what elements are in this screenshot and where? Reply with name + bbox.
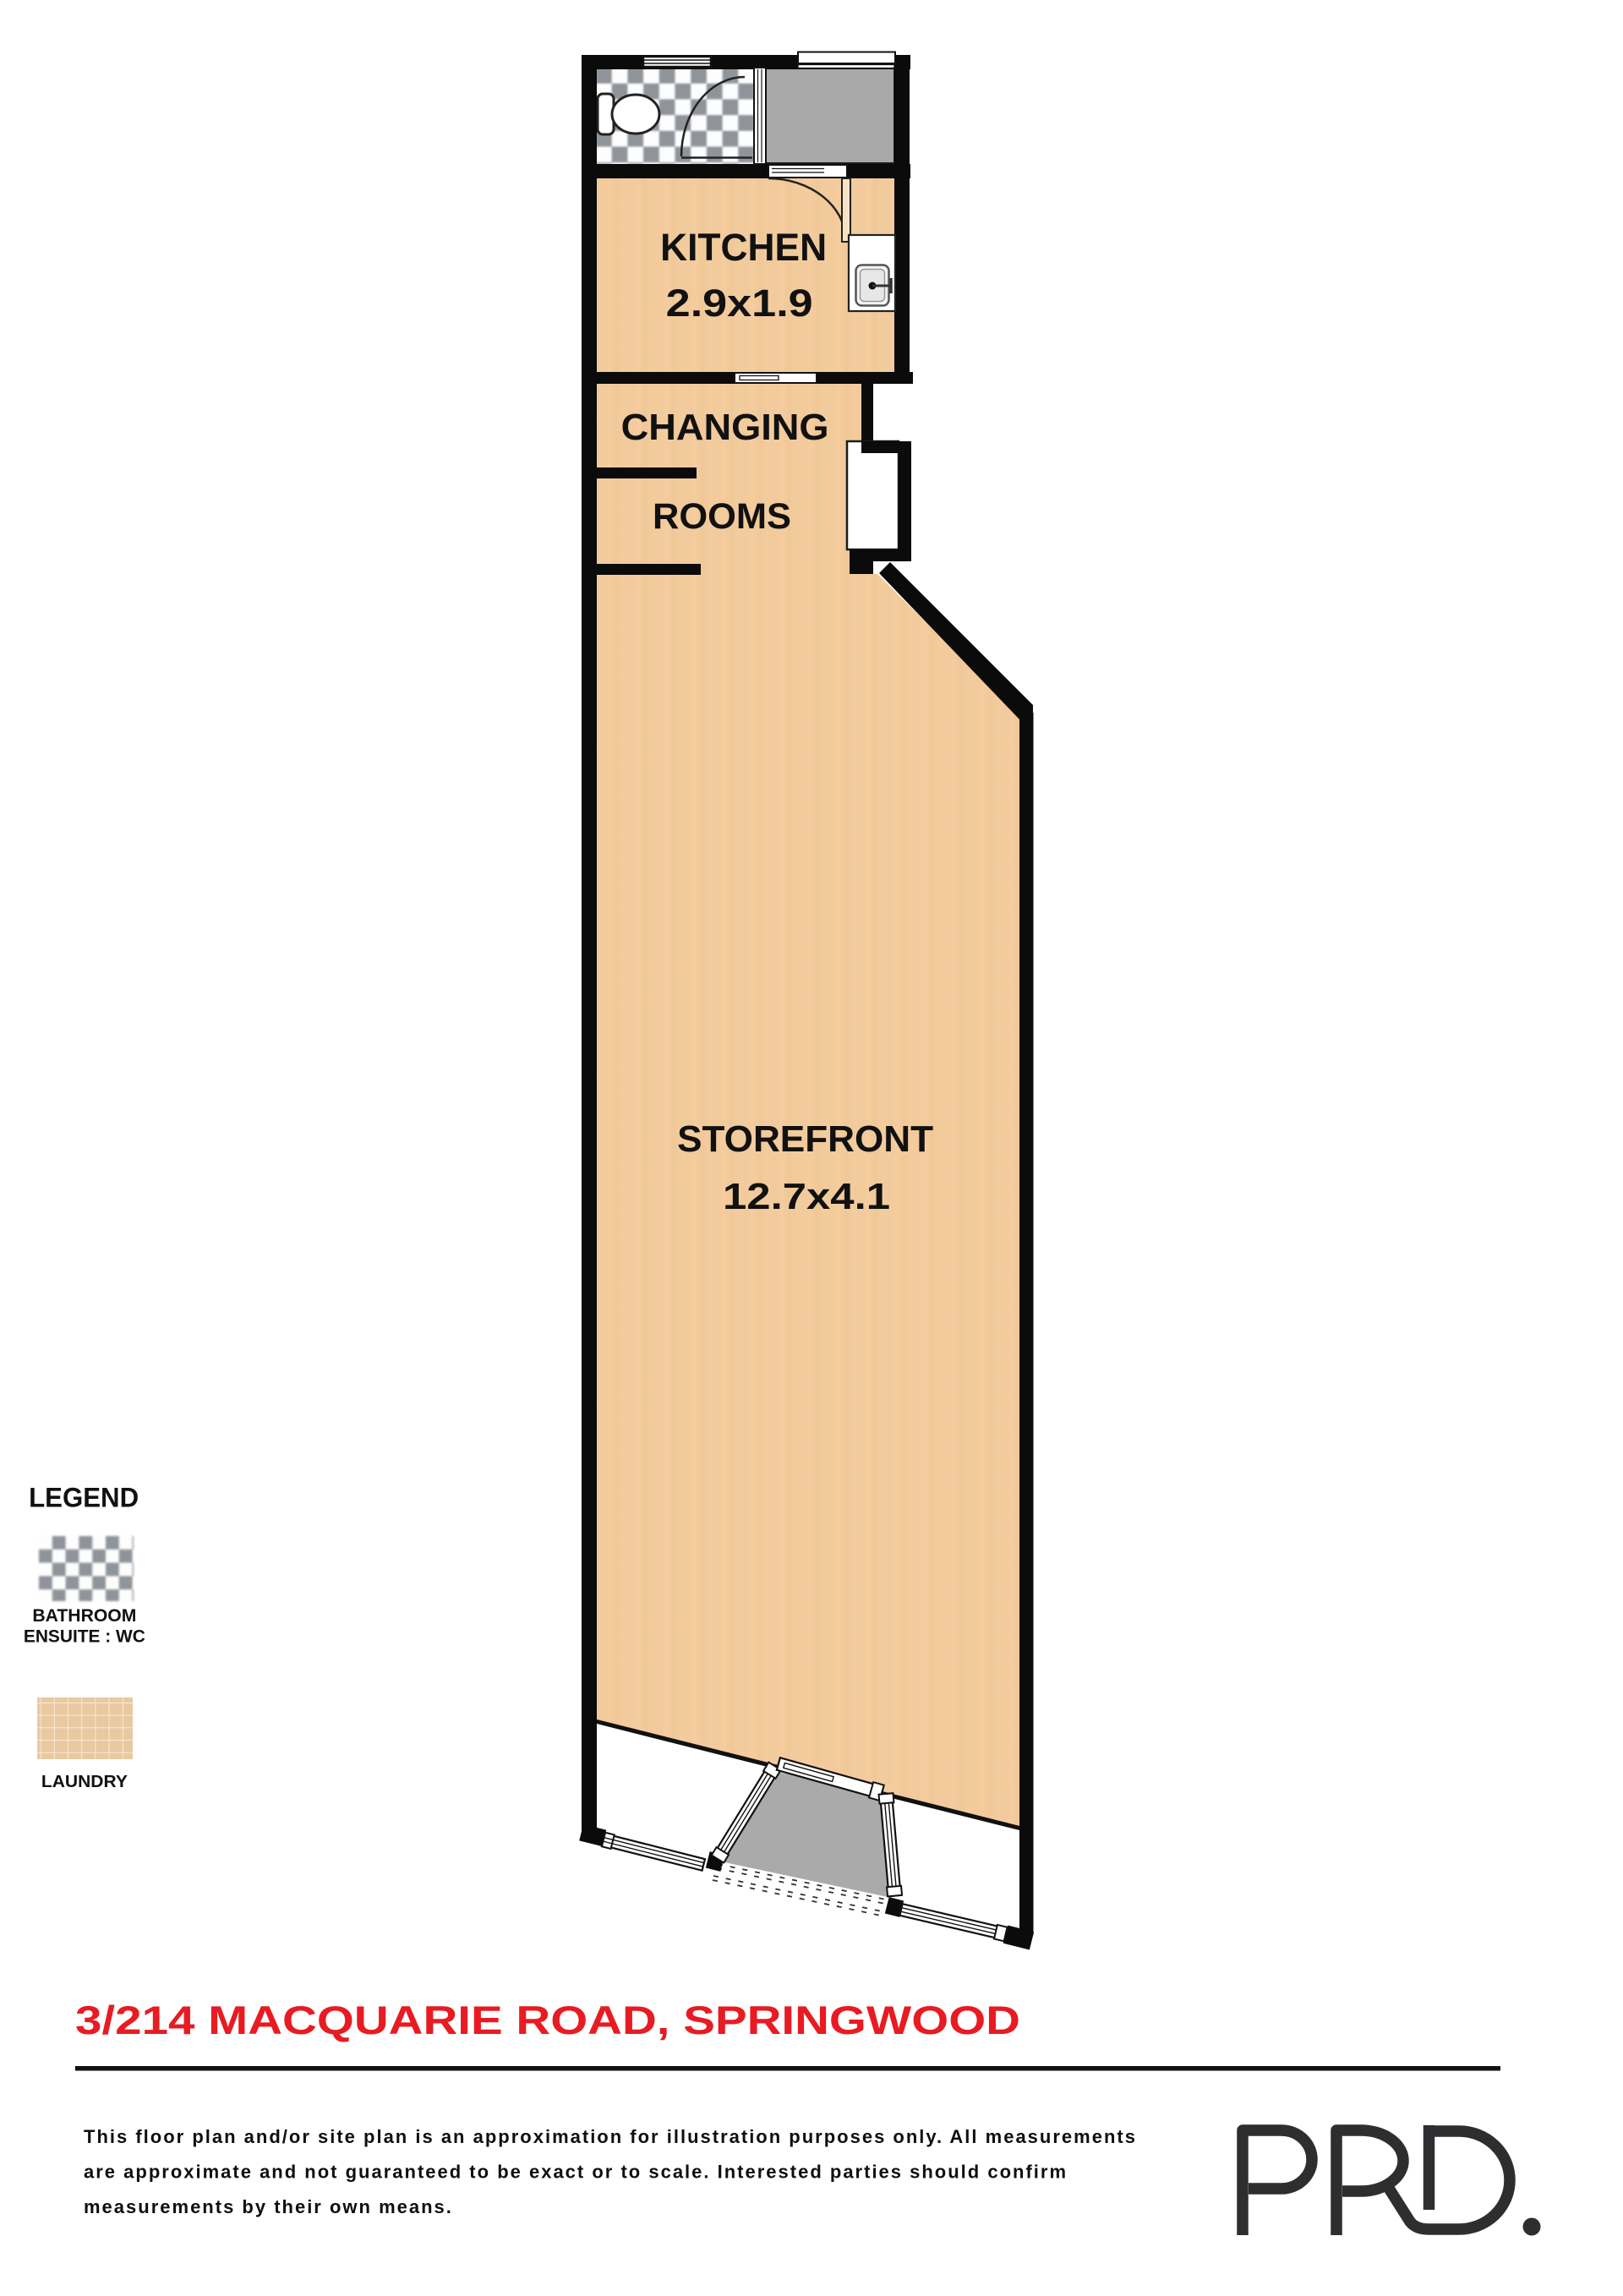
svg-text:LAUNDRY: LAUNDRY — [41, 1772, 128, 1791]
svg-text:3/214 MACQUARIE ROAD, SPRINGWO: 3/214 MACQUARIE ROAD, SPRINGWOOD — [75, 1998, 1020, 2042]
svg-text:measurements by their own mean: measurements by their own means. — [84, 2196, 453, 2217]
svg-text:KITCHEN: KITCHEN — [660, 226, 827, 269]
svg-text:LEGEND: LEGEND — [29, 1483, 139, 1513]
svg-text:12.7x4.1: 12.7x4.1 — [723, 1176, 890, 1217]
svg-text:STOREFRONT: STOREFRONT — [677, 1118, 933, 1160]
svg-text:2.9x1.9: 2.9x1.9 — [666, 282, 813, 325]
svg-text:ENSUITE : WC: ENSUITE : WC — [24, 1626, 145, 1646]
svg-text:CHANGING: CHANGING — [621, 407, 829, 448]
svg-text:are approximate and not guaran: are approximate and not guaranteed to be… — [84, 2162, 1068, 2183]
svg-text:BATHROOM: BATHROOM — [32, 1606, 136, 1626]
svg-text:ROOMS: ROOMS — [653, 496, 791, 537]
svg-text:This floor plan and/or site pl: This floor plan and/or site plan is an a… — [84, 2126, 1137, 2147]
